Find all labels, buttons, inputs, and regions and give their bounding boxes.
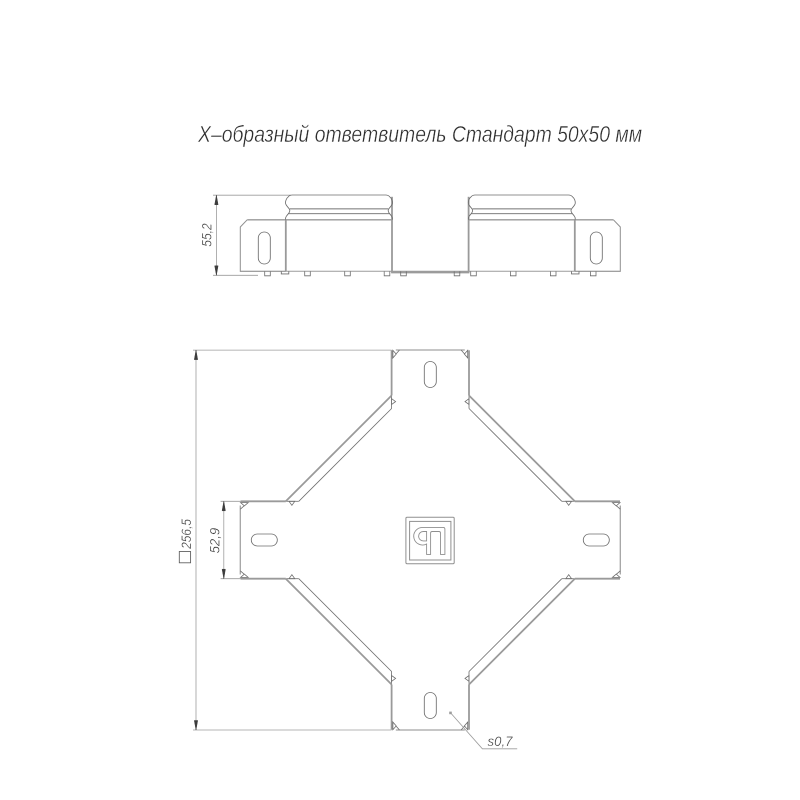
svg-text:256,5: 256,5	[178, 519, 194, 550]
svg-text:52,9: 52,9	[207, 528, 223, 554]
svg-text:s0,7: s0,7	[488, 734, 513, 749]
svg-text:55,2: 55,2	[199, 223, 215, 247]
svg-text:Х–образный ответвитель Стандар: Х–образный ответвитель Стандарт 50х50 мм	[197, 121, 642, 147]
